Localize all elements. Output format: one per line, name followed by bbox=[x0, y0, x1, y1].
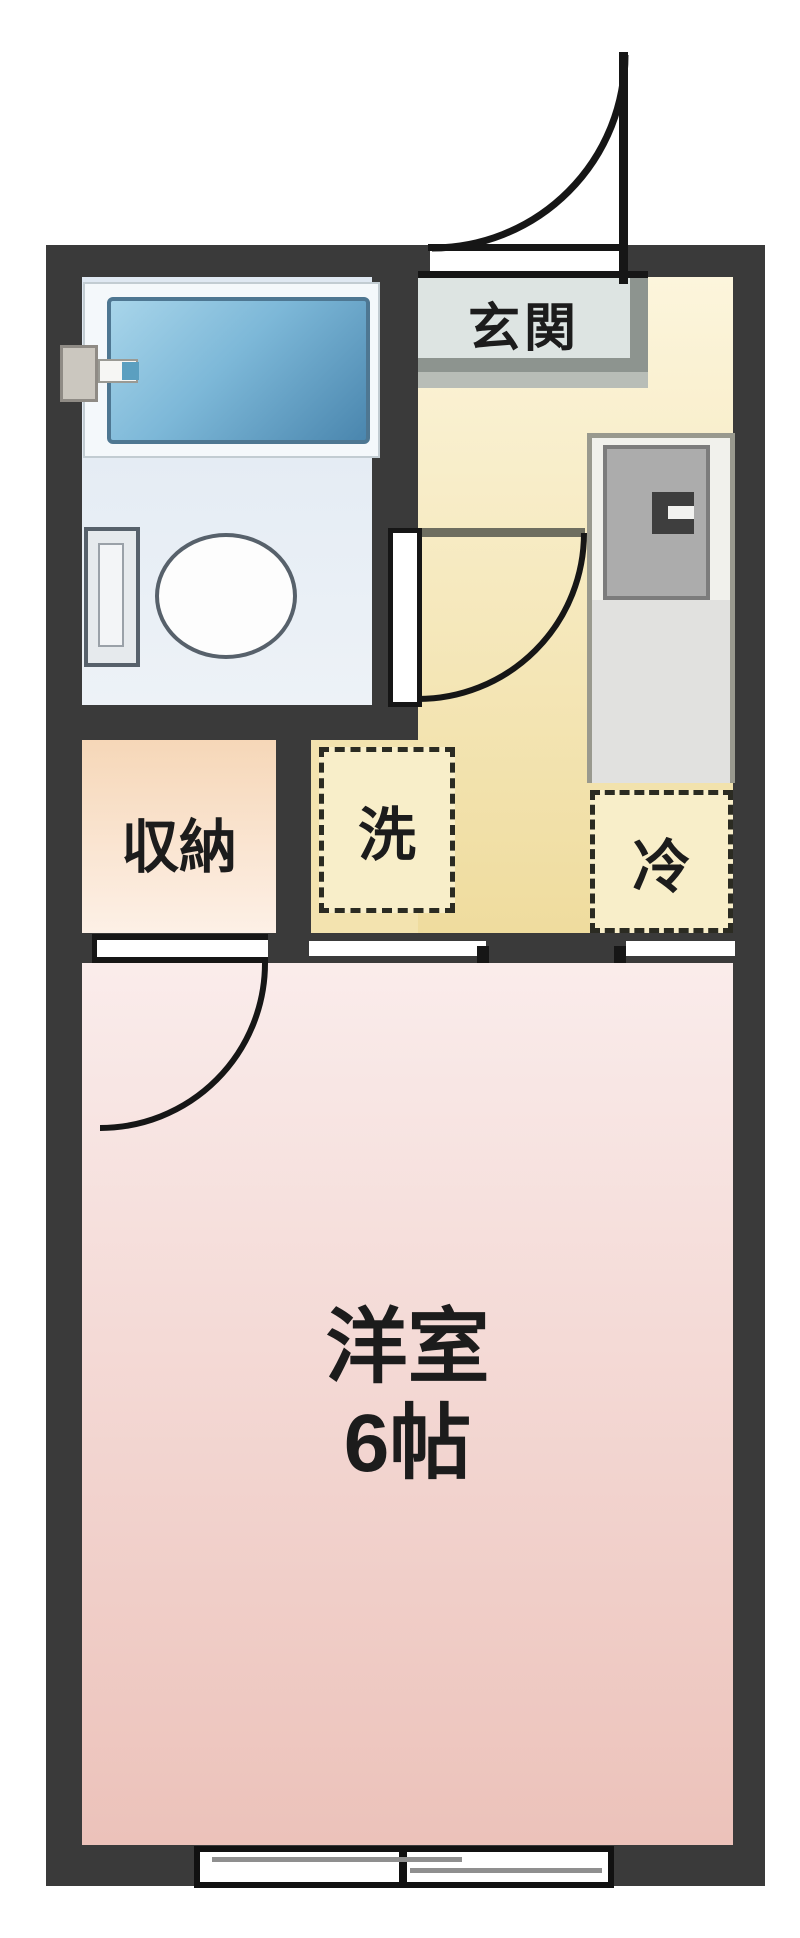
window-glass-line-left bbox=[212, 1857, 462, 1862]
kitchen-unit bbox=[587, 433, 735, 783]
kitchen-counter-lower bbox=[592, 600, 730, 783]
kitchen-door-panel bbox=[603, 445, 710, 600]
fridge-space: 冷 bbox=[590, 790, 733, 933]
genkan-step bbox=[418, 372, 648, 388]
floor-plan: 玄関 洗 冷 収納 洋室 6帖 bbox=[0, 0, 800, 1938]
kitchen-door-handle-slot bbox=[668, 506, 694, 519]
washer-space: 洗 bbox=[319, 747, 455, 913]
toilet-tank-lid bbox=[98, 543, 124, 647]
room-label-line2: 6帖 bbox=[82, 1396, 733, 1492]
entrance-door-arc bbox=[432, 55, 625, 248]
wall-closet-right bbox=[276, 740, 311, 933]
entrance-door-leaf bbox=[619, 52, 628, 284]
faucet-handle bbox=[122, 362, 139, 380]
washer-label: 洗 bbox=[358, 788, 416, 872]
kitchen-door-handle bbox=[652, 492, 694, 534]
faucet-base bbox=[60, 345, 98, 402]
closet-label: 収納 bbox=[82, 800, 276, 884]
bath-door-leaf bbox=[388, 528, 422, 707]
bathtub bbox=[107, 297, 370, 444]
window-divider bbox=[399, 1846, 407, 1888]
toilet-bowl bbox=[155, 533, 297, 659]
wall-inset-mid-tick bbox=[477, 946, 489, 963]
wall-inset-right bbox=[626, 941, 735, 956]
wall-inset-right-tick bbox=[614, 946, 626, 963]
genkan-label: 玄関 bbox=[418, 286, 630, 361]
wall-right bbox=[733, 245, 765, 1886]
bath-door-frame-line bbox=[418, 528, 585, 537]
entrance-threshold-line bbox=[418, 271, 648, 278]
wall-left bbox=[46, 245, 82, 1886]
window-glass-line-right bbox=[410, 1868, 602, 1873]
entrance-lintel-line bbox=[428, 244, 627, 251]
wall-top bbox=[46, 245, 765, 277]
room-label: 洋室 6帖 bbox=[82, 1300, 733, 1492]
wall-inset-mid bbox=[309, 941, 486, 956]
room-label-line1: 洋室 bbox=[82, 1300, 733, 1396]
wall-bath-bottom bbox=[46, 705, 418, 740]
fridge-label: 冷 bbox=[632, 820, 690, 904]
room-door-opening bbox=[92, 934, 268, 963]
toilet-tank bbox=[84, 527, 140, 667]
